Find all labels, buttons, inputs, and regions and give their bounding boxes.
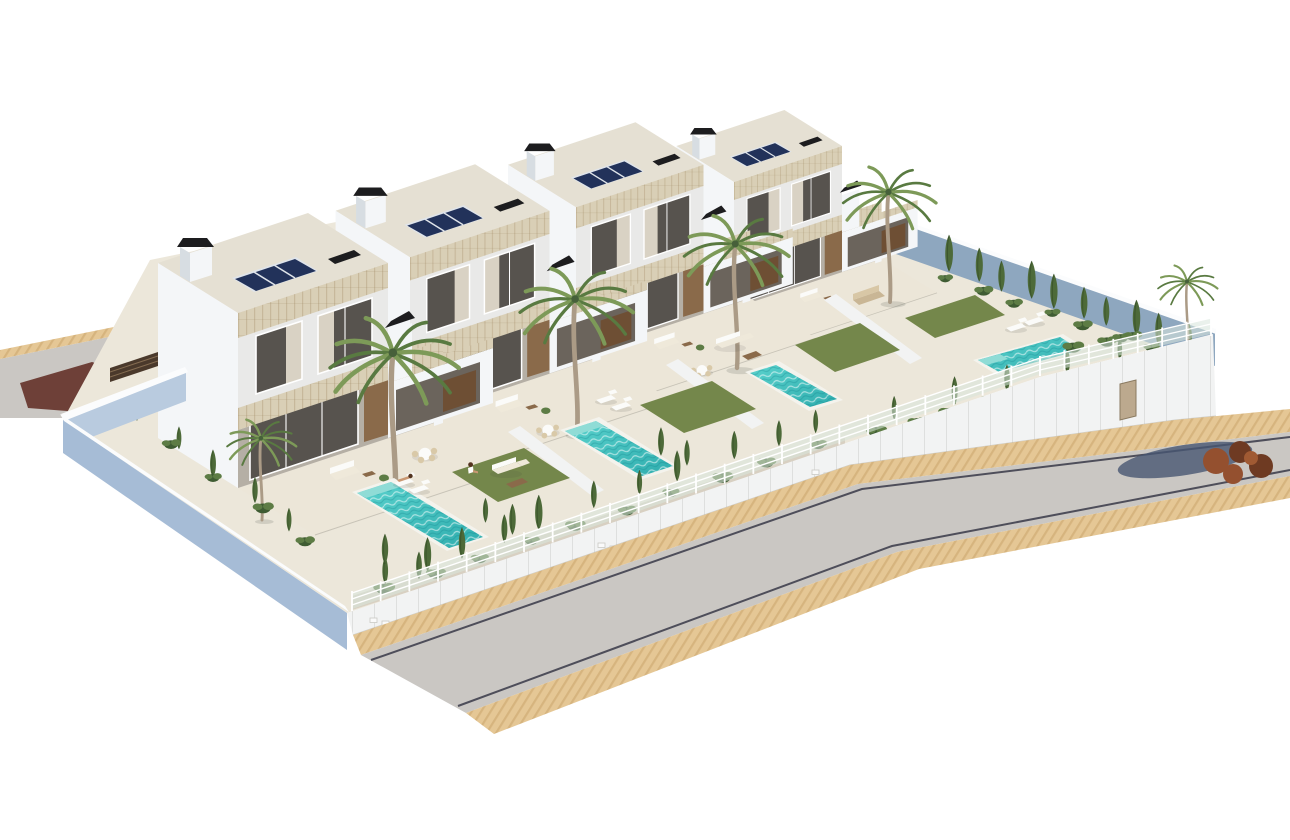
fence-post: [810, 434, 812, 454]
fence-post: [1064, 350, 1066, 370]
fence-post: [1088, 345, 1090, 365]
pedestrian-gate: [1120, 380, 1136, 420]
fence-post: [494, 542, 496, 562]
fence-post: [1112, 339, 1114, 359]
fence-post: [1186, 322, 1188, 342]
architectural-render: [0, 0, 1290, 840]
fence-post: [1161, 327, 1163, 347]
fence-post: [781, 444, 783, 464]
fence-post: [609, 503, 611, 523]
fence-post: [752, 454, 754, 474]
fence-post: [982, 376, 984, 396]
fence-post: [953, 385, 955, 405]
fence-post: [552, 522, 554, 542]
fence-post: [838, 425, 840, 445]
fence-post: [867, 415, 869, 435]
fence-post: [437, 562, 439, 582]
fence-post: [666, 483, 668, 503]
fence-post: [580, 513, 582, 533]
fence-post: [924, 395, 926, 415]
fence-post: [523, 532, 525, 552]
fence-post: [380, 581, 382, 601]
fence-post: [1210, 316, 1212, 336]
fence-post: [1039, 356, 1041, 376]
fence-post: [1137, 333, 1139, 353]
fence-post: [1010, 366, 1012, 386]
fence-post: [408, 571, 410, 591]
fence-post: [724, 464, 726, 484]
fence-post: [351, 591, 353, 611]
fence-post: [695, 474, 697, 494]
fence-post: [466, 552, 468, 572]
fence-post: [896, 405, 898, 425]
fence-post: [638, 493, 640, 513]
scene-canvas: [0, 0, 1290, 840]
